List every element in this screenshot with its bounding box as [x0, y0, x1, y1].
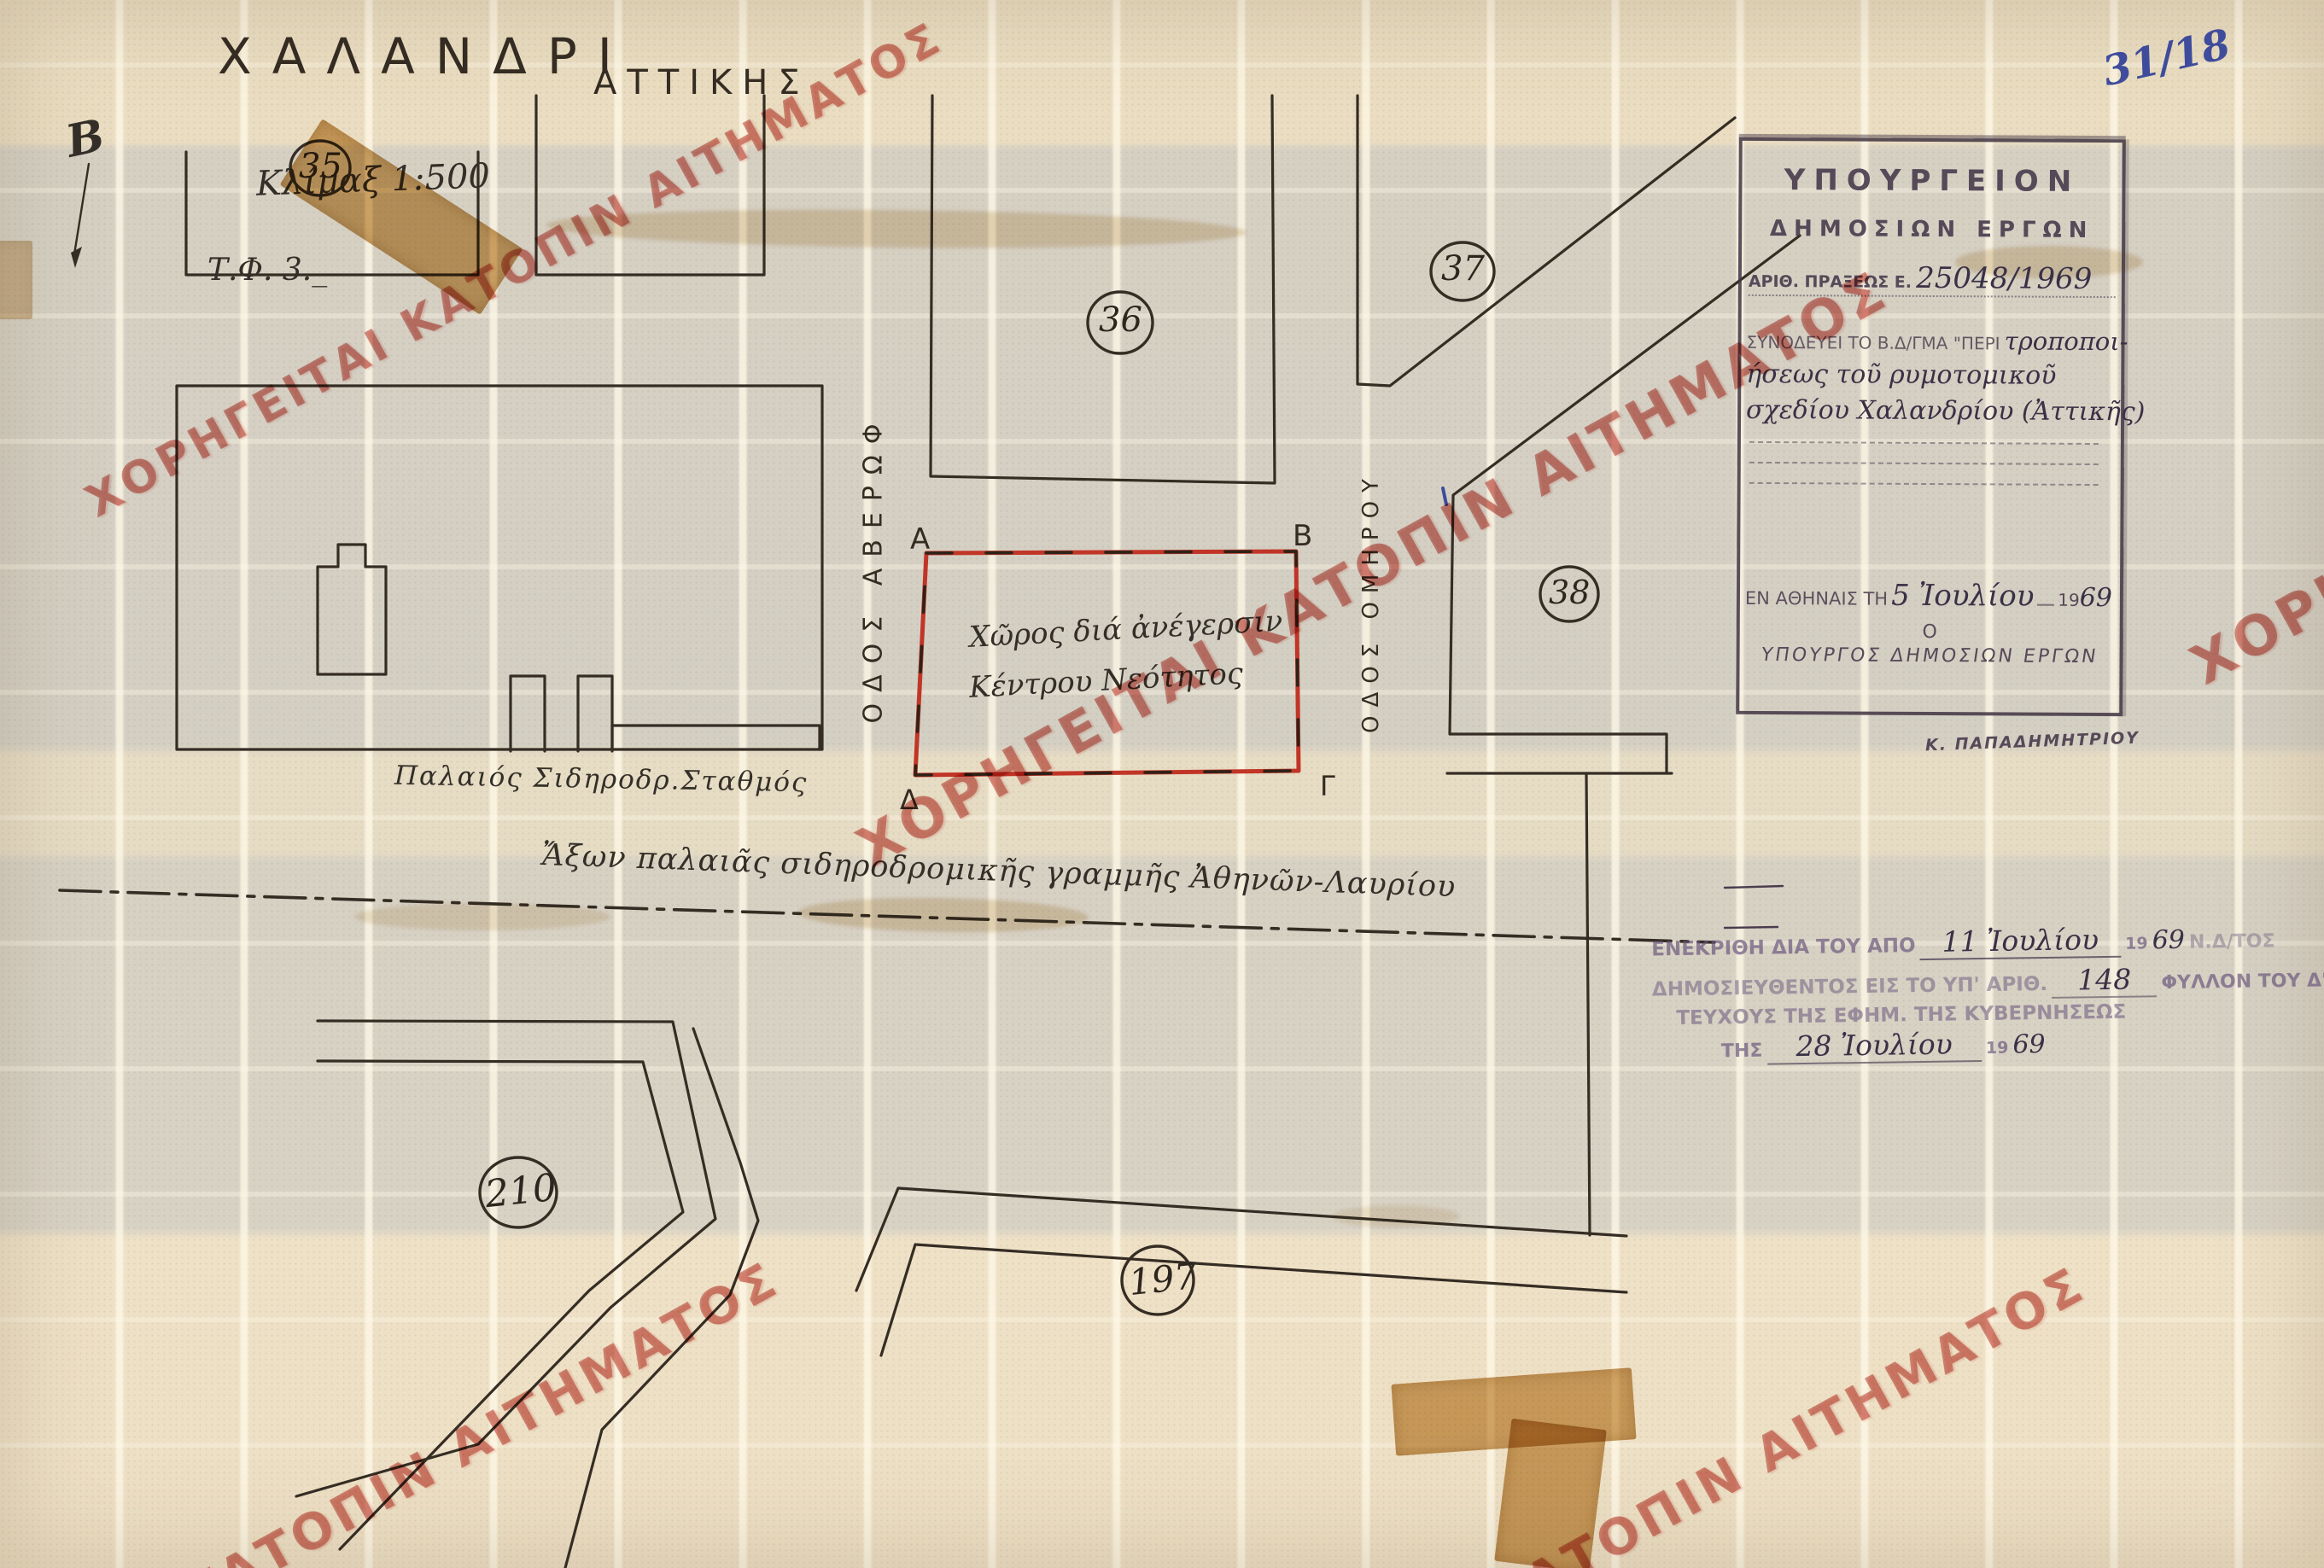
station-annex-2 — [578, 676, 612, 751]
block-number-36: 36 — [1099, 300, 1142, 340]
page-title: ΧΑΛΑΝΔΡΙ — [218, 27, 633, 85]
site-corner-b: Β — [1293, 519, 1312, 553]
stamp-rule-2 — [1749, 462, 2099, 465]
approval-line1-year-printed: 19 — [2125, 934, 2148, 953]
block-37-outline — [1358, 96, 1735, 386]
signatory-title: ΥΠΟΥΡΓΟΣ ΔΗΜΟΣΙΩΝ ΕΡΓΩΝ — [1738, 644, 2122, 667]
approval-line1-year-handwritten: 69 — [2152, 925, 2185, 956]
decree-handwritten-3: σχεδίου Χαλανδρίου (Ἀττικῆς) — [1746, 395, 2146, 427]
place-label: ΕΝ ΑΘΗΝΑΙΣ ΤΗ — [1745, 588, 1888, 609]
ministry-name-line1: ΥΠΟΥΡΓΕΙΟΝ — [1742, 163, 2122, 199]
year-printed: 19 — [2058, 590, 2080, 610]
block-number-38: 38 — [1549, 574, 1590, 611]
approval-line1-printed: ΕΝΕΚΡΙΘΗ ΔΙΑ ΤΟΥ ΑΠΟ — [1651, 935, 1916, 960]
approval-line4-handwritten: 28 Ἰουλίου — [1766, 1027, 1982, 1065]
adhesive-tape-left-edge — [0, 241, 32, 319]
date-handwritten: 5 Ἰουλίου — [1891, 579, 2035, 614]
north-arrow-tip — [71, 247, 82, 268]
signatory-article: Ο — [1740, 621, 2120, 644]
approval-stamp-dash-1 — [1725, 886, 1783, 888]
block-38-south-boundary — [1586, 773, 1590, 1235]
sheet-note: Τ.Φ. 3._ — [207, 253, 327, 288]
stamp-rule-3 — [1749, 482, 2099, 486]
ministry-name-line2: ΔΗΜΟΣΙΩΝ ΕΡΓΩΝ — [1742, 216, 2122, 243]
approval-line2-tail: ΦΥΛΛΟΝ ΤΟΥ Δ' — [2161, 970, 2324, 994]
block-number-37: 37 — [1441, 249, 1485, 289]
block-number-210: 210 — [483, 1166, 559, 1216]
date-underline — [2037, 604, 2054, 606]
station-block-outline — [177, 386, 822, 749]
act-number-value: 25048/1969 — [1916, 261, 2092, 296]
approval-line2-printed: ΔΗΜΟΣΙΕΥΘΕΝΤΟΣ ΕΙΣ ΤΟ ΥΠ' ΑΡΙΘ. — [1652, 973, 2048, 1000]
site-corner-a: Α — [910, 522, 930, 557]
block-36-outline — [931, 96, 1275, 483]
station-building — [318, 545, 386, 674]
approval-line2-handwritten: 148 — [2052, 962, 2158, 999]
year-handwritten: 69 — [2080, 583, 2112, 613]
stain-axis-left — [354, 903, 610, 930]
site-corner-g: Γ — [1320, 770, 1335, 802]
station-platform — [612, 726, 820, 749]
approval-line-2: ΔΗΜΟΣΙΕΥΘΕΝΤΟΣ ΕΙΣ ΤΟ ΥΠ' ΑΡΙΘ. 148 ΦΥΛΛ… — [1652, 960, 2318, 1003]
approval-line1-tail: Ν.Δ/ΤΟΣ — [2189, 930, 2275, 953]
lower-street-line-2 — [881, 1244, 1626, 1355]
decree-handwritten-1: τροποποι- — [2005, 326, 2128, 356]
stamp-rule-1 — [1749, 441, 2099, 445]
street-label-averof: ΟΔΟΣ ΑΒΕΡΩΦ — [859, 398, 889, 739]
approval-line4-printed: ΤΗΣ — [1721, 1040, 1763, 1063]
approval-line4-year-printed: 19 — [1986, 1039, 2009, 1058]
station-annex-1 — [511, 676, 545, 751]
act-number-row: ΑΡΙΘ. ΠΡΑΞΕΩΣ Ε. 25048/1969 — [1749, 260, 2116, 298]
north-arrow-needle — [74, 164, 89, 254]
scanned-town-plan-document: ΧΑΛΑΝΔΡΙ ΑΤΤΙΚΗΣ Κλίμαξ 1:500 Τ.Φ. 3._ 3… — [0, 0, 2324, 1568]
stain-bottom-right — [1332, 1205, 1460, 1227]
ministry-stamp-box: ΥΠΟΥΡΓΕΙΟΝ ΔΗΜΟΣΙΩΝ ΕΡΓΩΝ ΑΡΙΘ. ΠΡΑΞΕΩΣ … — [1736, 137, 2126, 716]
date-row: ΕΝ ΑΘΗΝΑΙΣ ΤΗ 5 Ἰουλίου 19 69 — [1745, 578, 2112, 614]
block-number-197: 197 — [1127, 1255, 1200, 1303]
approval-line1-handwritten: 11 Ἰουλίου — [1919, 923, 2121, 960]
approval-stamp: ΕΝΕΚΡΙΘΗ ΔΙΑ ΤΟΥ ΑΠΟ 11 Ἰουλίου 19 69 Ν.… — [1651, 920, 2319, 1065]
approval-line4-year-handwritten: 69 — [2012, 1029, 2046, 1060]
lower-street-line-1 — [856, 1188, 1626, 1291]
